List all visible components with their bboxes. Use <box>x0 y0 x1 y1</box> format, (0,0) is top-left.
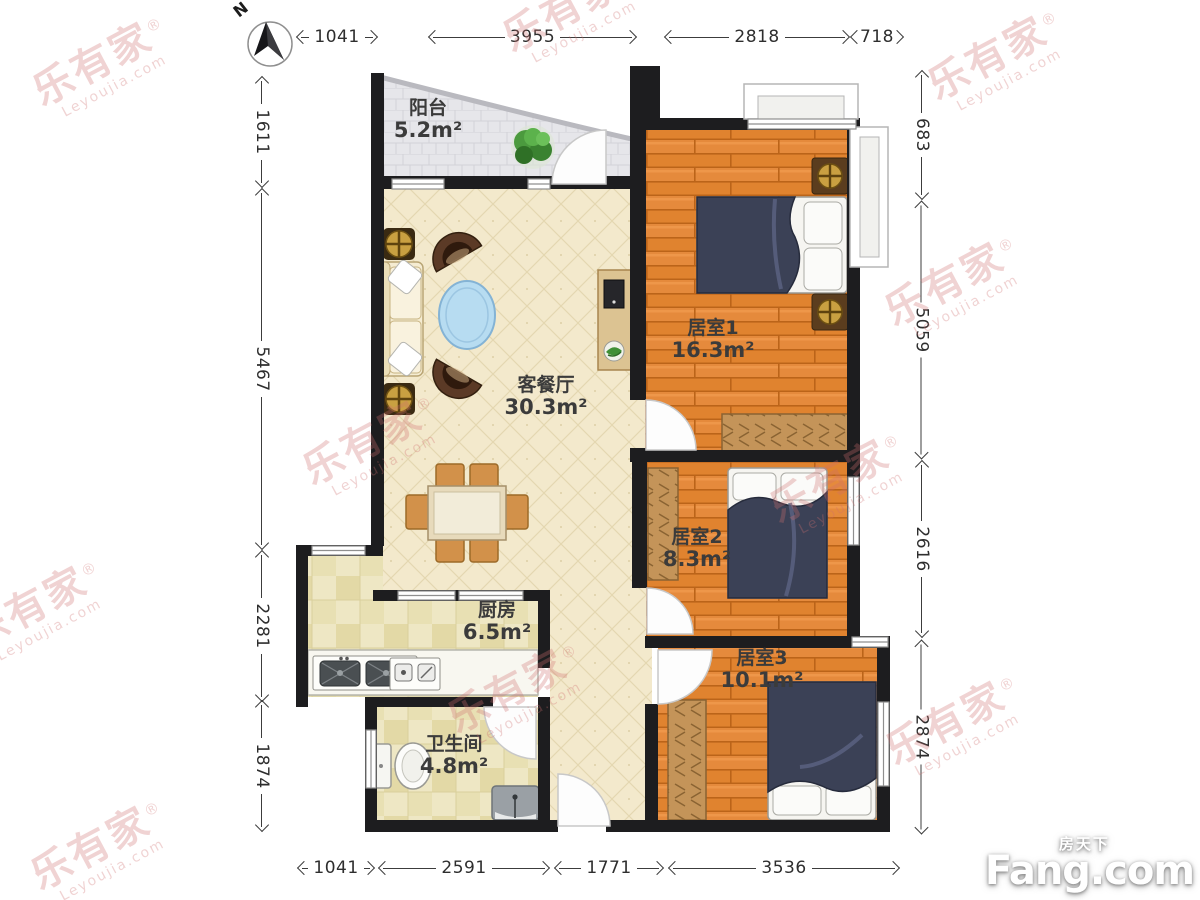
floorplan-page: N 阳台 5.2m² 客餐厅 30.3m² 居室1 16.3m² 居室2 8.3… <box>0 0 1200 900</box>
room-label-bathroom: 卫生间 4.8m² <box>420 734 488 779</box>
bed-double-2 <box>728 468 827 598</box>
room-label-bedroom3: 居室3 10.1m² <box>721 648 804 693</box>
dim-top-0: 1041 <box>298 26 376 48</box>
dim-bottom-2: 1771 <box>556 857 662 879</box>
bed-double-3 <box>768 682 876 820</box>
bay-window-top <box>744 84 858 119</box>
room-label-kitchen: 厨房 6.5m² <box>463 600 531 645</box>
tv-cabinet <box>598 270 632 370</box>
dim-right-0: 683 <box>911 72 933 198</box>
dim-bottom-1: 2591 <box>380 857 548 879</box>
room-label-bedroom2: 居室2 8.3m² <box>663 527 731 572</box>
floorplan-drawing <box>0 0 1200 900</box>
dim-top-2: 2818 <box>666 26 848 48</box>
shower-basin <box>492 786 539 820</box>
room-label-living: 客餐厅 30.3m² <box>505 375 588 420</box>
balcony-plant-icon <box>511 125 555 169</box>
nightstand-1a <box>812 158 848 194</box>
dim-left-1: 5467 <box>251 190 273 548</box>
dim-left-3: 1874 <box>251 702 273 830</box>
room-label-balcony: 阳台 5.2m² <box>394 98 462 143</box>
dim-bottom-0: 1041 <box>299 857 373 879</box>
kitchen-counter <box>308 650 538 695</box>
dim-bottom-3: 3536 <box>670 857 898 879</box>
bay-window-right <box>850 127 888 267</box>
bed-double-1 <box>697 197 847 293</box>
coffee-table <box>439 281 495 349</box>
dim-right-1: 5059 <box>911 203 933 458</box>
nightstand-1b <box>812 294 848 330</box>
room-label-bedroom1: 居室1 16.3m² <box>672 318 755 363</box>
dim-right-3: 2874 <box>911 642 933 833</box>
dim-top-3: 718 <box>852 26 898 48</box>
wardrobe-bedroom1 <box>722 414 848 452</box>
side-lamp-bottom <box>383 383 415 415</box>
compass-icon <box>248 22 292 66</box>
side-lamp-top <box>383 228 415 260</box>
wardrobe-bedroom3 <box>668 700 706 820</box>
fang-logo-en: Fang.com <box>985 854 1194 888</box>
dim-top-1: 3955 <box>430 26 635 48</box>
dim-left-0: 1611 <box>251 78 273 186</box>
fang-logo: 房天下 Fang.com <box>985 833 1194 888</box>
dim-left-2: 2281 <box>251 552 273 700</box>
dim-right-2: 2616 <box>911 462 933 636</box>
